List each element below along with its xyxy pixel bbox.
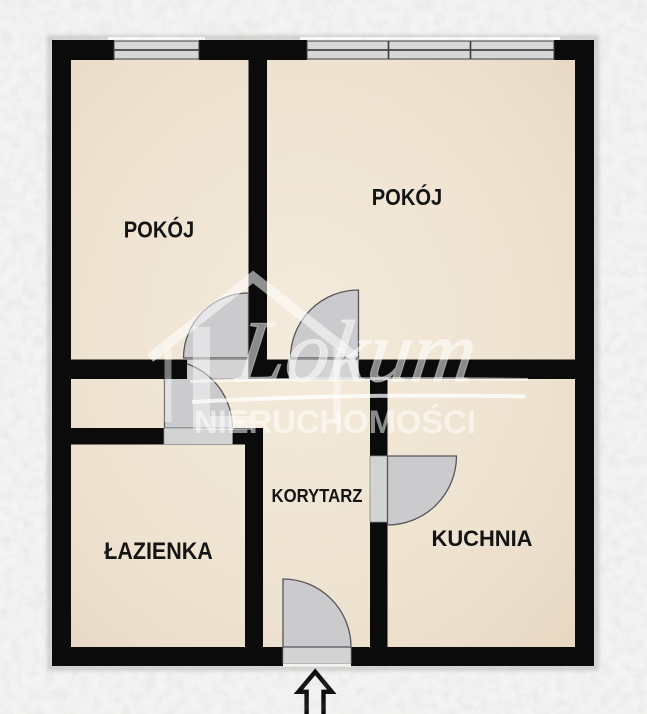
svg-text:POKÓJ: POKÓJ bbox=[372, 183, 443, 210]
svg-text:KORYTARZ: KORYTARZ bbox=[272, 485, 363, 506]
svg-text:Lokum: Lokum bbox=[229, 303, 483, 401]
svg-text:KUCHNIA: KUCHNIA bbox=[432, 526, 533, 551]
svg-text:POKÓJ: POKÓJ bbox=[124, 216, 195, 243]
svg-text:ŁAZIENKA: ŁAZIENKA bbox=[104, 538, 213, 565]
svg-text:NIERUCHOMOŚCI: NIERUCHOMOŚCI bbox=[194, 403, 476, 440]
